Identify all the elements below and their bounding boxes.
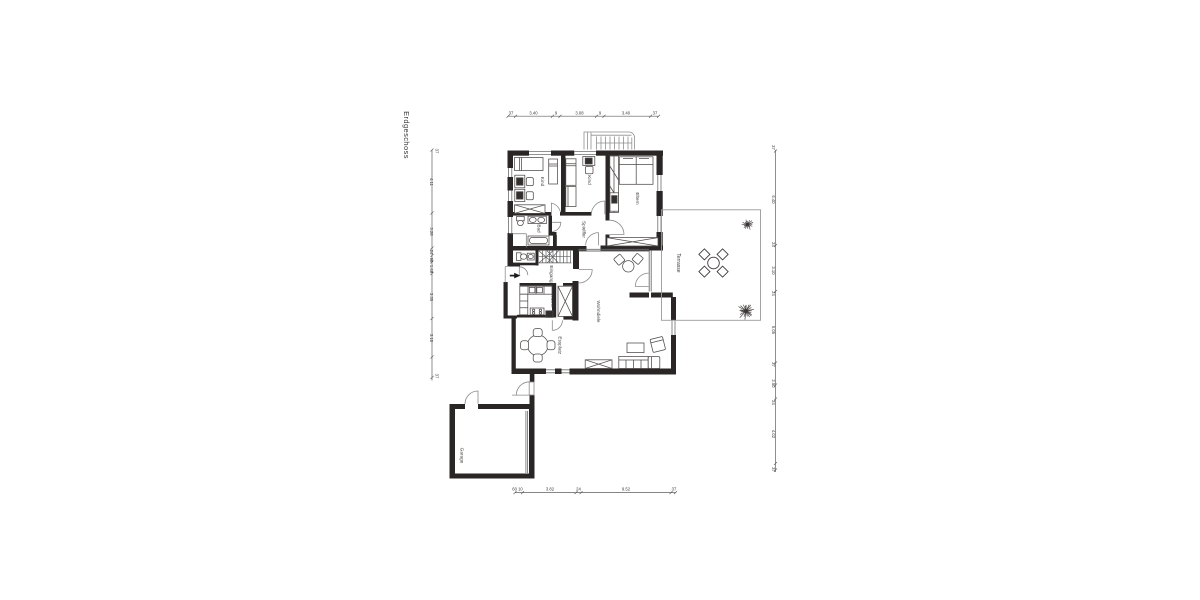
svg-text:60 10: 60 10 <box>512 487 523 492</box>
svg-text:37: 37 <box>672 487 677 492</box>
svg-text:3.82: 3.82 <box>546 487 555 492</box>
svg-text:37: 37 <box>509 110 514 115</box>
svg-text:4.02: 4.02 <box>771 430 776 439</box>
svg-text:Eltern: Eltern <box>635 192 640 205</box>
svg-text:3.08: 3.08 <box>575 110 584 115</box>
svg-text:3.10: 3.10 <box>771 266 776 275</box>
svg-text:Essplatz: Essplatz <box>557 336 562 354</box>
svg-text:Kind: Kind <box>540 177 545 187</box>
svg-text:4.11: 4.11 <box>429 178 434 187</box>
svg-text:9.52: 9.52 <box>622 487 631 492</box>
svg-text:5.05: 5.05 <box>771 326 776 335</box>
svg-text:Kind: Kind <box>587 175 592 185</box>
svg-text:37: 37 <box>771 145 776 150</box>
svg-text:37: 37 <box>771 467 776 472</box>
svg-text:3.28: 3.28 <box>429 227 434 236</box>
svg-text:3.35: 3.35 <box>429 293 434 302</box>
svg-text:24: 24 <box>771 291 776 296</box>
svg-text:98: 98 <box>429 258 434 263</box>
svg-text:1.48: 1.48 <box>429 265 434 274</box>
svg-text:24: 24 <box>429 250 434 255</box>
svg-text:Küche: Küche <box>550 294 555 308</box>
svg-text:Wohndiele: Wohndiele <box>596 300 601 322</box>
svg-text:3.40: 3.40 <box>622 110 631 115</box>
svg-text:2.50: 2.50 <box>771 379 776 388</box>
svg-text:9: 9 <box>599 110 602 115</box>
svg-text:24: 24 <box>771 242 776 247</box>
svg-text:24: 24 <box>771 400 776 405</box>
svg-text:9: 9 <box>555 110 558 115</box>
svg-text:37: 37 <box>771 362 776 367</box>
svg-text:37: 37 <box>435 149 440 154</box>
svg-text:Garage: Garage <box>460 448 465 464</box>
svg-text:Eingang: Eingang <box>549 265 554 283</box>
svg-text:Bad: Bad <box>536 224 541 233</box>
svg-text:3.40: 3.40 <box>529 110 538 115</box>
svg-text:24: 24 <box>576 487 581 492</box>
svg-text:6.40: 6.40 <box>771 195 776 204</box>
svg-text:3.10: 3.10 <box>429 334 434 343</box>
svg-text:Spielflur: Spielflur <box>581 221 586 238</box>
svg-text:37: 37 <box>435 374 440 379</box>
svg-text:37: 37 <box>653 110 658 115</box>
svg-text:Erdgeschoss: Erdgeschoss <box>402 111 411 159</box>
svg-text:Terrasse: Terrasse <box>675 253 681 272</box>
